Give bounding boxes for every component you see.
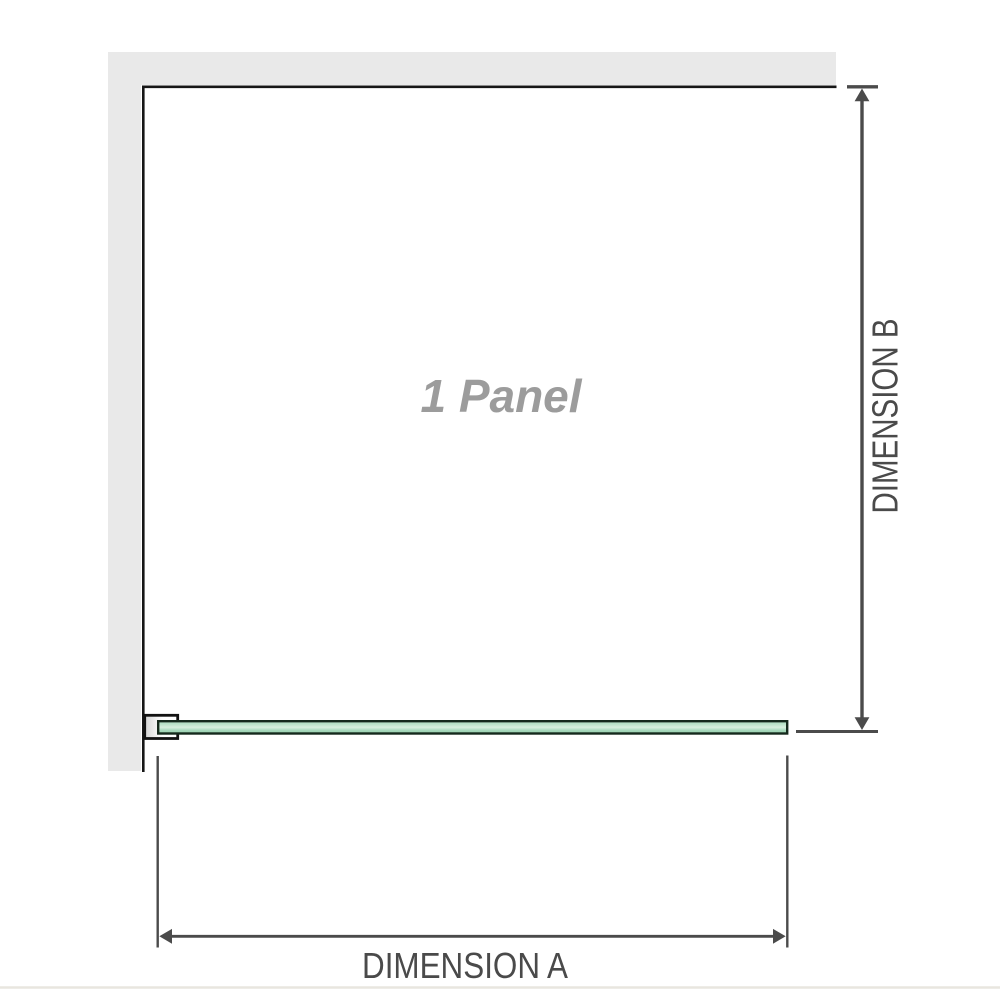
- svg-text:1 Panel: 1 Panel: [420, 370, 582, 422]
- svg-text:DIMENSION A: DIMENSION A: [362, 945, 568, 986]
- svg-text:DIMENSION B: DIMENSION B: [865, 319, 906, 514]
